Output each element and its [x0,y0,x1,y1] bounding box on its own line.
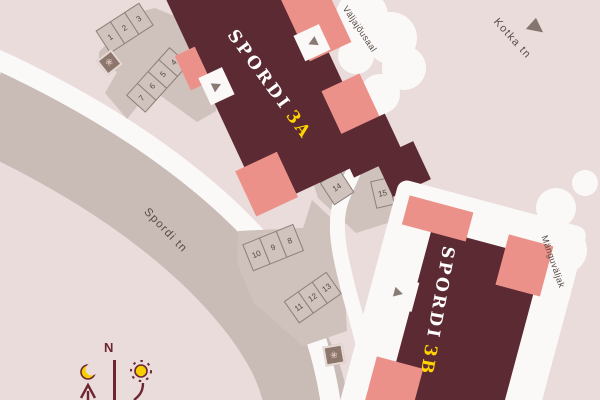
sun-path-hook [134,383,143,400]
building-3b[interactable] [384,228,543,400]
north-label: N [104,340,113,355]
entrance-arrow-icon [392,287,403,299]
utility-square-icon: ❀ [322,343,345,366]
compass: N [55,338,175,400]
entrance-arrow-icon [306,36,318,49]
north-arrow-icon [113,360,116,400]
site-map: 1 2 3 7 6 5 4 14 15 10 9 8 11 12 13 ❀ ❀ [0,0,600,400]
compass-graphics [55,338,175,400]
sun-icon [131,361,151,381]
west-arrow-icon [81,385,95,400]
entrance-arrow-icon [210,80,222,93]
moon-icon [81,364,98,380]
